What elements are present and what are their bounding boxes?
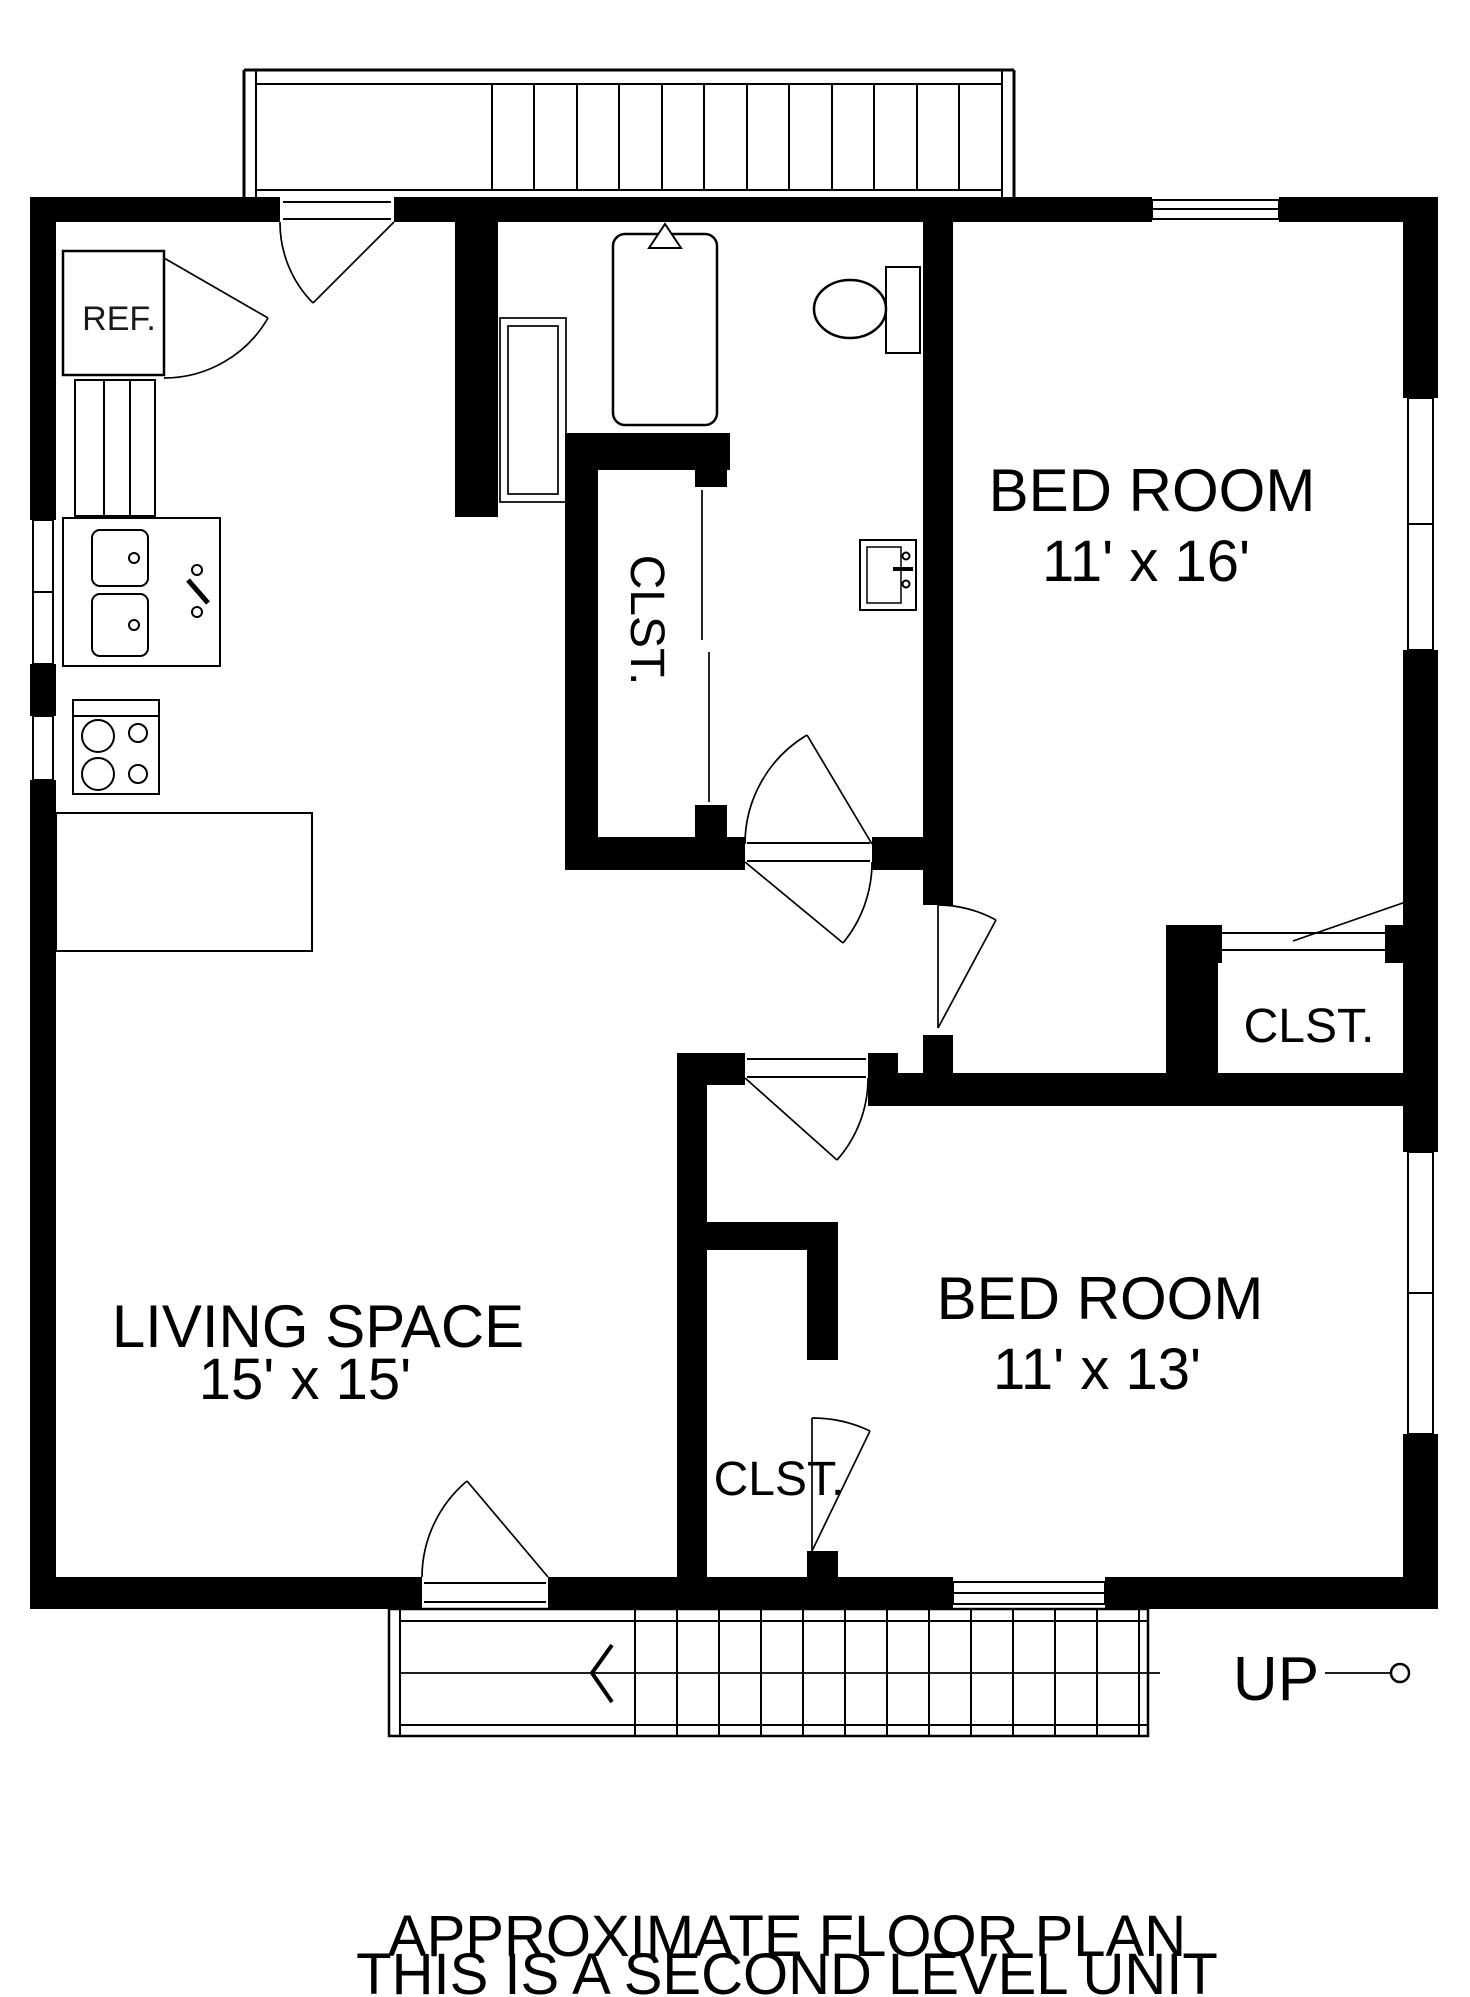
hall-closet-doors xyxy=(702,490,709,802)
stairs-up-label: UP xyxy=(1233,1645,1319,1714)
toilet xyxy=(814,267,920,353)
bedroom2-dimensions-label: 11' x 13' xyxy=(993,1337,1201,1402)
vanity-sink xyxy=(860,540,916,610)
stove xyxy=(73,700,159,794)
bedroom1-closet-label: CLST. xyxy=(1244,1000,1375,1053)
hall-closet-label: CLST. xyxy=(620,555,673,686)
window-left-kitchen-2 xyxy=(33,716,53,780)
kitchen-sink xyxy=(63,518,220,666)
refrigerator-door xyxy=(164,258,268,378)
bedroom2-name-label: BED ROOM xyxy=(937,1265,1264,1332)
threshold-kitchen-entry xyxy=(283,202,391,219)
bedroom1-door xyxy=(938,905,996,1028)
utility-chase xyxy=(500,318,566,502)
threshold-bedroom1-closet xyxy=(1222,933,1385,950)
floor-plan-drawing: REF. BED ROOM 11' x 16' CLST. CLST. LIVI… xyxy=(0,0,1470,1997)
bathroom-fixtures xyxy=(613,224,920,610)
deck-railing-balusters xyxy=(492,84,1002,190)
hall-door-north xyxy=(745,735,872,844)
plan-title-line-2: THIS IS A SECOND LEVEL UNIT xyxy=(356,1942,1218,1997)
living-space-dimensions-label: 15' x 15' xyxy=(199,1347,411,1412)
window-top-bedroom1 xyxy=(1152,200,1279,219)
window-right-bedroom2 xyxy=(1408,1152,1433,1434)
deck-railing xyxy=(244,70,1014,197)
hall-door-south xyxy=(745,862,872,943)
window-left-kitchen-1 xyxy=(33,520,53,664)
window-bottom-bedroom2 xyxy=(953,1582,1105,1604)
kitchen-counter xyxy=(56,813,312,951)
threshold-bedroom2 xyxy=(747,1059,866,1077)
bedroom1-name-label: BED ROOM xyxy=(989,457,1316,524)
kitchen-cabinet xyxy=(75,380,155,516)
floor-plan-page: REF. BED ROOM 11' x 16' CLST. CLST. LIVI… xyxy=(0,0,1470,1997)
kitchen-entry-door xyxy=(280,222,394,303)
door-thresholds xyxy=(283,202,1385,1602)
threshold-living-entry xyxy=(424,1583,546,1602)
refrigerator-label: REF. xyxy=(82,300,156,338)
window-right-bedroom1 xyxy=(1408,398,1433,650)
bedroom2-closet-label: CLST. xyxy=(714,1453,845,1506)
bedroom1-dimensions-label: 11' x 16' xyxy=(1042,529,1250,594)
labels: REF. BED ROOM 11' x 16' CLST. CLST. LIVI… xyxy=(82,300,1374,1997)
bedroom2-door xyxy=(745,1078,868,1160)
threshold-hall xyxy=(747,843,870,861)
bathtub xyxy=(613,224,717,425)
living-entry-door xyxy=(422,1481,548,1577)
